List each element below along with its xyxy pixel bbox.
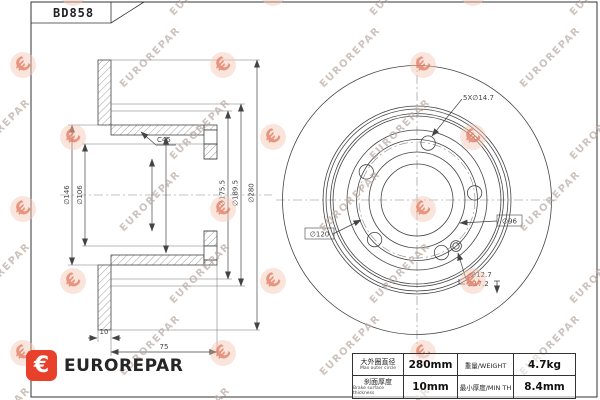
bolt-circle-label: ∅120 [310, 231, 329, 239]
spec-label-outer-diameter: 大外圈直径 Max outer circle [353, 354, 404, 376]
spec-label-weight: 重量/WEIGHT [458, 354, 514, 376]
spec-value-outer-diameter: 280mm [404, 354, 458, 376]
eurorepar-logo-icon: € [26, 350, 57, 381]
bolt-hole-section-bottom [204, 246, 217, 260]
spec-value-min-thickness: 8.4mm [514, 376, 575, 398]
cross-section-view: ∅280 ∅189.5 ∅175.5 ∅146 ∅106 C45 10 75 [60, 60, 272, 356]
front-view: 5X∅14.7 ∅120 ∅96 ∅12.7 ∅17.2 [276, 58, 558, 346]
chamfer-label: C45 [157, 136, 171, 144]
dim-hat-step-diameter: ∅175.5 [219, 180, 227, 206]
spec-label-min-thickness: 最小厚度/MIN TH [458, 376, 514, 398]
spec-value-thickness: 10mm [404, 376, 458, 398]
technical-drawing: ∅280 ∅189.5 ∅175.5 ∅146 ∅106 C45 10 75 [0, 0, 600, 400]
hub-pilot-label: ∅96 [502, 218, 518, 226]
bolt-hole-section-top [204, 130, 217, 144]
pin-hole-dia-label: ∅12.7 [470, 271, 492, 279]
pin-counterbore-label: ∅17.2 [467, 280, 489, 288]
friction-ring-top-section [98, 60, 111, 125]
spec-label-thickness: 刹面厚度 Brake surface thickness [353, 376, 404, 398]
spec-table: 大外圈直径 Max outer circle 280mm 重量/WEIGHT 4… [352, 353, 576, 399]
hat-cylinder-top-section [111, 125, 204, 135]
hat-cylinder-bottom-section [111, 255, 204, 265]
part-number: BD858 [53, 6, 94, 20]
dim-hat-outer-diameter: ∅146 [63, 185, 71, 205]
dim-thickness: 10 [100, 328, 109, 336]
eurorepar-wordmark: EUROREPAR [64, 356, 183, 376]
dim-hub-diameter: ∅106 [76, 185, 84, 205]
friction-ring-bottom-section [98, 265, 111, 330]
spec-value-weight: 4.7kg [514, 354, 575, 376]
brand-logo: € EUROREPAR [26, 350, 183, 381]
dim-outer-diameter: ∅280 [248, 183, 256, 202]
drawing-sheet: ∅280 ∅189.5 ∅175.5 ∅146 ∅106 C45 10 75 [0, 0, 600, 400]
dim-friction-inner-diameter: ∅189.5 [232, 180, 240, 206]
bolt-holes-label: 5X∅14.7 [463, 94, 494, 102]
